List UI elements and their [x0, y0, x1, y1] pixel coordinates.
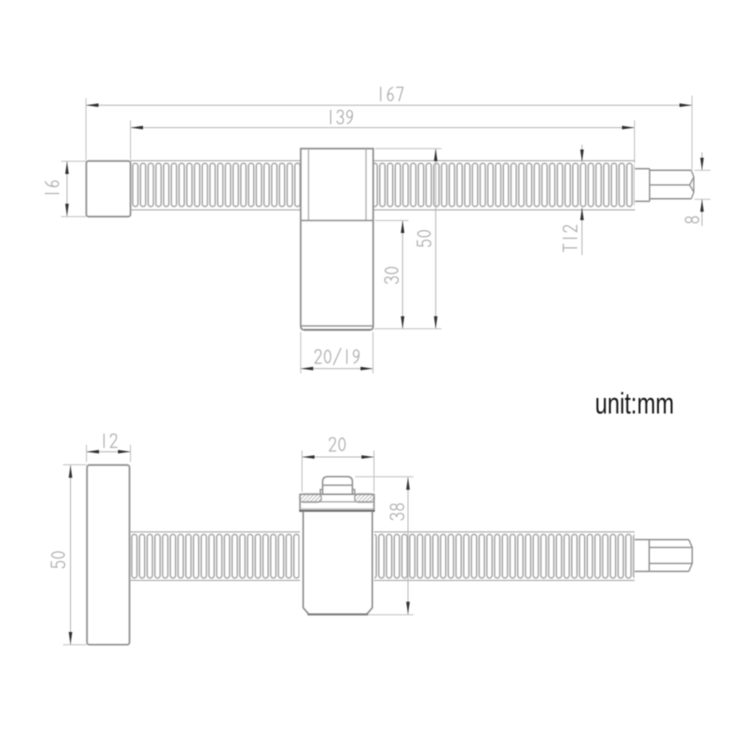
- svg-text:unit:mm: unit:mm: [595, 388, 674, 421]
